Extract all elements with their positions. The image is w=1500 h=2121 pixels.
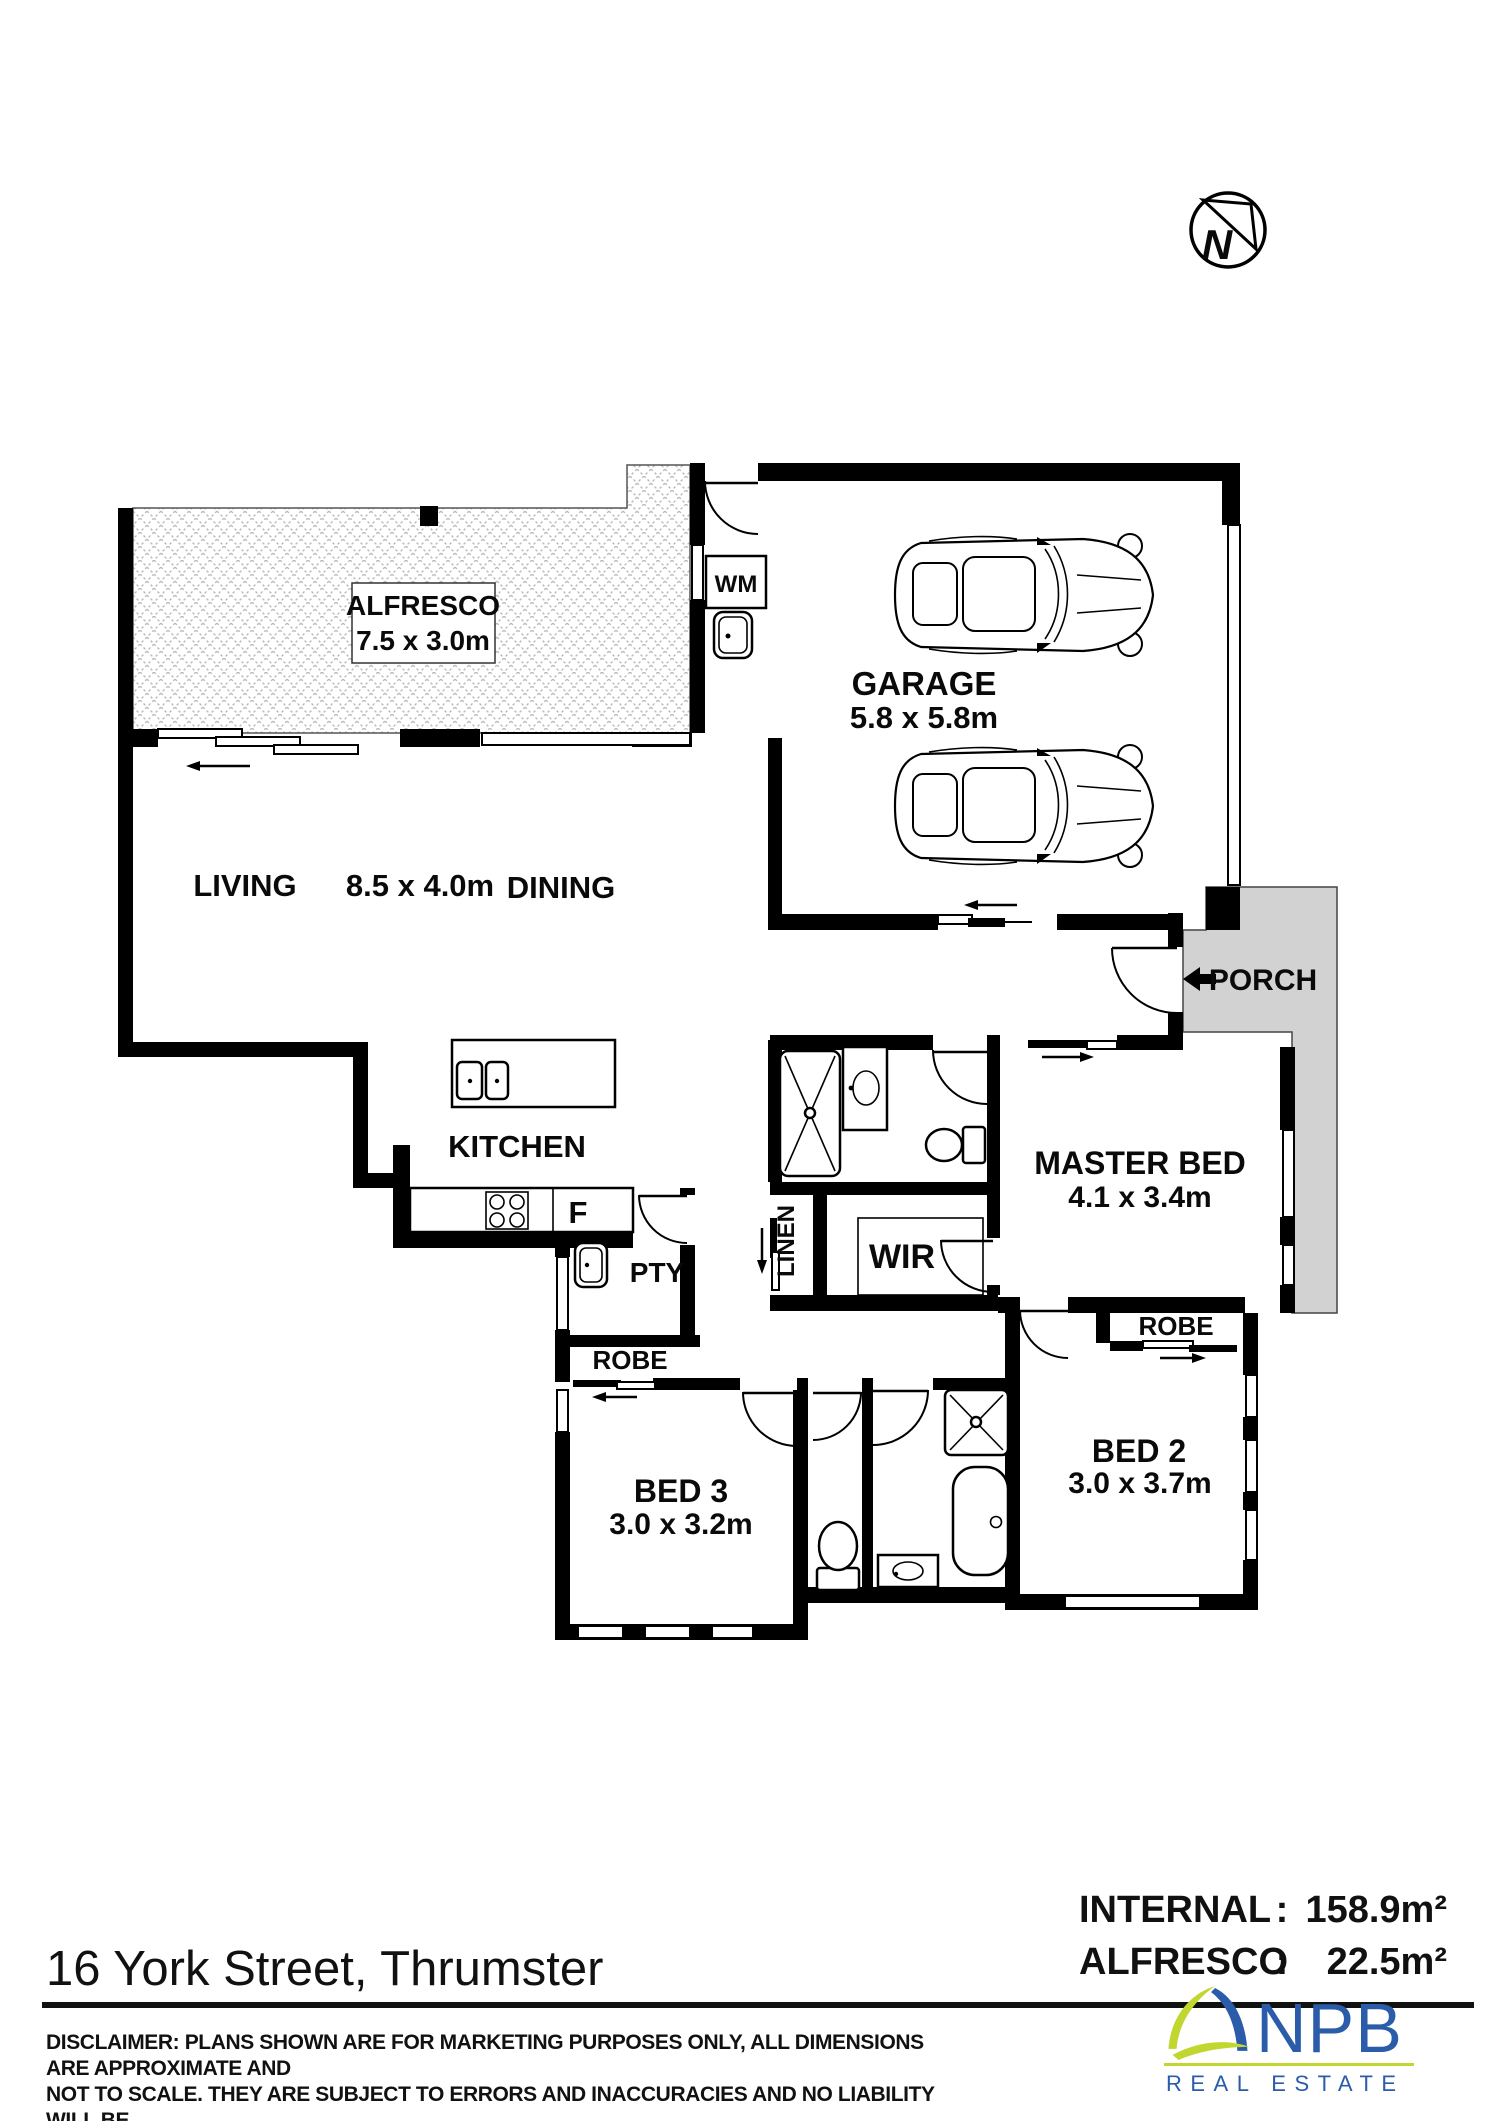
internal-area-value: 158.9m² — [1295, 1889, 1447, 1932]
linen-label: LINEN — [773, 1205, 800, 1277]
floorplan-page: N — [0, 0, 1500, 2121]
ensuite-fixtures — [780, 1047, 985, 1176]
master-bed-dims: 4.1 x 3.4m — [1068, 1181, 1211, 1214]
ensuite-door — [933, 1050, 987, 1104]
bed3-name: BED 3 — [634, 1473, 728, 1509]
bed2-door — [1020, 1310, 1068, 1358]
kitchen-name: KITCHEN — [448, 1129, 586, 1164]
bed2-dims: 3.0 x 3.7m — [1068, 1467, 1211, 1500]
alfresco-label: ALFRESCO 7.5 x 3.0m — [346, 583, 500, 663]
alfresco-area-label: ALFRESCO — [1079, 1941, 1269, 1984]
disclaimer-line-2: NOT TO SCALE. THEY ARE SUBJECT TO ERRORS… — [46, 2082, 966, 2121]
floorplan-drawing: N — [0, 0, 1500, 1870]
property-address: 16 York Street, Thrumster — [46, 1941, 603, 1997]
living-dining-dims: 8.5 x 4.0m — [346, 868, 494, 903]
car-icon — [895, 745, 1153, 867]
alfresco-area-value: 22.5m² — [1295, 1941, 1447, 1984]
entry-door — [1112, 948, 1177, 1013]
bed2-robe-slider — [1143, 1341, 1237, 1363]
alfresco-slider — [158, 729, 358, 771]
area-summary: INTERNAL : 158.9m² ALFRESCO : 22.5m² — [1079, 1889, 1447, 1993]
bed2-name: BED 2 — [1092, 1433, 1186, 1469]
bathroom-door — [873, 1390, 928, 1445]
disclaimer-text: DISCLAIMER: PLANS SHOWN ARE FOR MARKETIN… — [46, 2030, 966, 2121]
alfresco-name: ALFRESCO — [346, 590, 500, 621]
wc-door — [813, 1392, 861, 1440]
dining-name: DINING — [507, 870, 616, 905]
bed3-robe-label: ROBE — [592, 1345, 667, 1375]
porch-label: PORCH — [1209, 964, 1317, 997]
garage-dims: 5.8 x 5.8m — [850, 700, 998, 735]
garage-internal-slider — [938, 900, 1032, 927]
logo-name: NPB — [1256, 1996, 1403, 2060]
wir-door — [941, 1240, 993, 1292]
car-icon — [895, 534, 1153, 656]
porch-area — [1183, 887, 1337, 1313]
laundry-door — [705, 481, 758, 534]
pantry-sink — [575, 1243, 607, 1287]
compass-north-icon: N — [1191, 193, 1265, 268]
wir-label: WIR — [869, 1238, 935, 1276]
internal-area-label: INTERNAL — [1079, 1889, 1269, 1932]
living-name: LIVING — [193, 868, 296, 903]
garage-name: GARAGE — [852, 665, 997, 702]
alfresco-dims: 7.5 x 3.0m — [356, 625, 490, 656]
master-bed-name: MASTER BED — [1034, 1145, 1246, 1181]
area-row-internal: INTERNAL : 158.9m² — [1079, 1889, 1447, 1932]
npb-sail-icon — [1164, 1984, 1256, 2060]
pantry-door — [639, 1195, 687, 1243]
wm-label: WM — [715, 571, 758, 598]
master-bed-slider — [1028, 1040, 1117, 1062]
disclaimer-line-1: DISCLAIMER: PLANS SHOWN ARE FOR MARKETIN… — [46, 2030, 966, 2082]
alfresco-area-colon: : — [1269, 1941, 1295, 1984]
bed3-door — [743, 1392, 797, 1446]
pantry-label: PTY — [630, 1257, 685, 1288]
logo-tagline: REAL ESTATE — [1164, 2071, 1414, 2097]
bathroom-fixtures — [817, 1390, 1008, 1590]
bed3-robe-slider — [573, 1380, 655, 1402]
internal-area-colon: : — [1269, 1889, 1295, 1932]
bed2-robe-label: ROBE — [1138, 1311, 1213, 1341]
npb-logo: NPB REAL ESTATE — [1164, 1984, 1414, 2097]
kitchen-island — [452, 1040, 615, 1107]
compass-label: N — [1202, 221, 1234, 268]
area-row-alfresco: ALFRESCO : 22.5m² — [1079, 1941, 1447, 1984]
fridge-label: F — [569, 1195, 588, 1230]
kitchen-bench — [410, 1188, 633, 1232]
bed3-dims: 3.0 x 3.2m — [609, 1508, 752, 1541]
